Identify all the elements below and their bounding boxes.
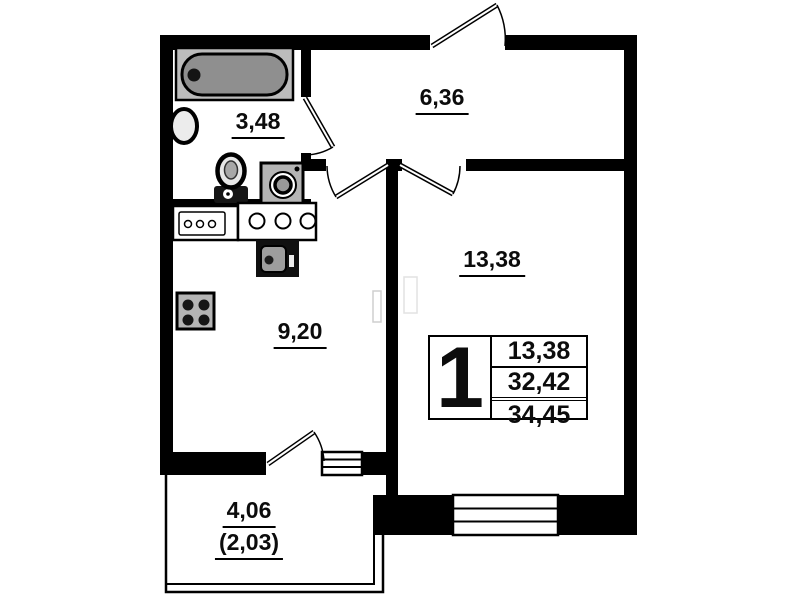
balcony-area-value: 4,06 <box>223 497 276 528</box>
wall-living-bottom-left <box>373 495 453 535</box>
wall-right <box>624 35 637 535</box>
hallway-area-label: 6,36 <box>416 86 469 109</box>
hallway-area-value: 6,36 <box>416 84 469 115</box>
legend-total-area: 34,45 <box>492 401 586 430</box>
entrance-door <box>432 5 505 46</box>
living-room-area-value: 13,38 <box>459 246 525 277</box>
wall-left <box>160 35 173 475</box>
wall-bathroom-right-upper <box>301 50 311 97</box>
washing-machine <box>261 163 303 208</box>
wall-living-bottom-right <box>558 495 637 535</box>
kitchen-counter <box>173 206 238 240</box>
legend-rooms-count: 1 <box>430 337 492 418</box>
floor-plan-drawing <box>0 0 799 600</box>
wall-kitchen-living <box>386 159 398 495</box>
wall-top-right <box>505 35 637 50</box>
wall-kitchen-bottom-right <box>362 452 386 475</box>
wall-hall-stub-left <box>301 159 326 171</box>
apartment-legend-table: 1 13,38 32,42 34,45 <box>428 335 588 420</box>
bathroom-area-value: 3,48 <box>232 108 285 139</box>
legend-areas-column: 13,38 32,42 34,45 <box>492 337 586 418</box>
wall-hall-right <box>466 159 624 171</box>
stove <box>177 293 214 329</box>
wall-kitchen-bottom-left <box>160 452 266 475</box>
legend-apartment-area: 32,42 <box>492 368 586 401</box>
bathtub <box>176 48 293 100</box>
living-room-window <box>453 495 558 535</box>
vent-ghost-kitchen <box>373 291 381 322</box>
vent-ghost-living <box>404 277 417 313</box>
balcony-reduced-area-label: (2,03) <box>215 531 283 554</box>
living-room-area-label: 13,38 <box>459 248 525 271</box>
balcony-area-label: 4,06 <box>223 499 276 522</box>
bathroom-door <box>305 98 333 155</box>
oven <box>256 240 299 277</box>
balcony-door <box>268 432 324 464</box>
kitchen-area-value: 9,20 <box>274 318 327 349</box>
balcony-window <box>322 452 362 475</box>
floor-plan: 3,48 6,36 13,38 9,20 4,06 (2,03) 1 13,38… <box>0 0 799 600</box>
toilet <box>214 155 248 204</box>
wash-basin <box>171 109 197 143</box>
legend-living-area: 13,38 <box>492 337 586 368</box>
living-room-door <box>400 165 460 194</box>
kitchen-sink <box>238 203 316 240</box>
kitchen-area-label: 9,20 <box>274 320 327 343</box>
kitchen-door <box>327 165 388 197</box>
bathroom-area-label: 3,48 <box>232 110 285 133</box>
balcony-reduced-area-value: (2,03) <box>215 529 283 560</box>
